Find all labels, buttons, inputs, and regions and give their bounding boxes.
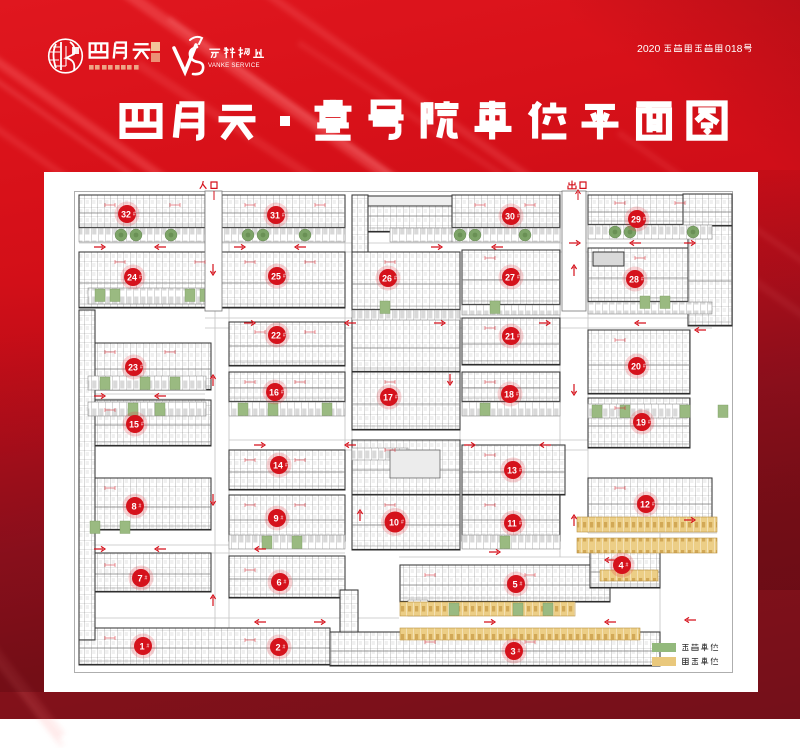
- svg-text:26: 26: [382, 274, 392, 284]
- svg-text:13: 13: [507, 466, 517, 476]
- svg-text:#: #: [395, 395, 398, 401]
- svg-text:#: #: [140, 365, 143, 371]
- svg-text:#: #: [281, 390, 284, 396]
- svg-text:7: 7: [137, 574, 142, 584]
- svg-text:28: 28: [629, 275, 639, 285]
- svg-text:#: #: [285, 463, 288, 469]
- svg-text:15: 15: [129, 420, 139, 430]
- svg-text:8: 8: [131, 502, 136, 512]
- svg-text:1: 1: [139, 642, 144, 652]
- svg-text:21: 21: [505, 332, 515, 342]
- svg-text:5: 5: [512, 580, 517, 590]
- svg-text:25: 25: [271, 272, 281, 282]
- svg-text:12: 12: [640, 500, 650, 510]
- svg-text:18: 18: [504, 390, 514, 400]
- svg-text:2020: 2020: [637, 43, 661, 55]
- svg-text:#: #: [517, 334, 520, 340]
- svg-text:29: 29: [631, 215, 641, 225]
- svg-text:19: 19: [636, 418, 646, 428]
- svg-text:10: 10: [389, 518, 399, 528]
- svg-text:27: 27: [505, 273, 515, 283]
- svg-text:14: 14: [273, 461, 283, 471]
- svg-text:#: #: [283, 274, 286, 280]
- svg-text:#: #: [147, 644, 150, 650]
- svg-text:9: 9: [273, 514, 278, 524]
- svg-text:#: #: [626, 563, 629, 569]
- svg-text:#: #: [283, 645, 286, 651]
- svg-text:11: 11: [507, 519, 516, 529]
- svg-text:24: 24: [127, 273, 137, 283]
- svg-text:16: 16: [269, 388, 279, 398]
- svg-text:#: #: [141, 422, 144, 428]
- svg-text:23: 23: [128, 363, 138, 373]
- svg-text:30: 30: [505, 212, 515, 222]
- svg-text:6: 6: [276, 578, 281, 588]
- svg-text:20: 20: [631, 362, 641, 372]
- svg-text:#: #: [139, 275, 142, 281]
- svg-text:#: #: [643, 217, 646, 223]
- svg-text:#: #: [520, 582, 523, 588]
- svg-text:2: 2: [275, 643, 280, 653]
- svg-text:32: 32: [121, 210, 131, 220]
- svg-text:#: #: [145, 576, 148, 582]
- svg-text:#: #: [643, 364, 646, 370]
- svg-text:#: #: [648, 420, 651, 426]
- svg-text:#: #: [284, 580, 287, 586]
- svg-text:4: 4: [618, 561, 624, 571]
- svg-text:#: #: [281, 516, 284, 522]
- svg-text:#: #: [518, 649, 521, 655]
- svg-text:#: #: [394, 276, 397, 282]
- svg-text:#: #: [516, 392, 519, 398]
- svg-text:#: #: [519, 468, 522, 474]
- svg-text:#: #: [652, 502, 655, 508]
- svg-text:#: #: [517, 214, 520, 220]
- svg-text:17: 17: [383, 393, 393, 403]
- svg-text:#: #: [133, 212, 136, 218]
- svg-text:#: #: [282, 213, 285, 219]
- svg-text:31: 31: [270, 211, 280, 221]
- svg-text:22: 22: [271, 331, 281, 341]
- svg-text:#: #: [401, 520, 404, 526]
- svg-text:3: 3: [510, 647, 515, 657]
- svg-text:018: 018: [725, 43, 743, 55]
- svg-text:VANKE SERVICE: VANKE SERVICE: [208, 62, 260, 69]
- svg-text:#: #: [139, 504, 142, 510]
- svg-text:#: #: [519, 521, 522, 527]
- svg-text:#: #: [517, 275, 520, 281]
- svg-text:#: #: [283, 333, 286, 339]
- svg-text:#: #: [641, 277, 644, 283]
